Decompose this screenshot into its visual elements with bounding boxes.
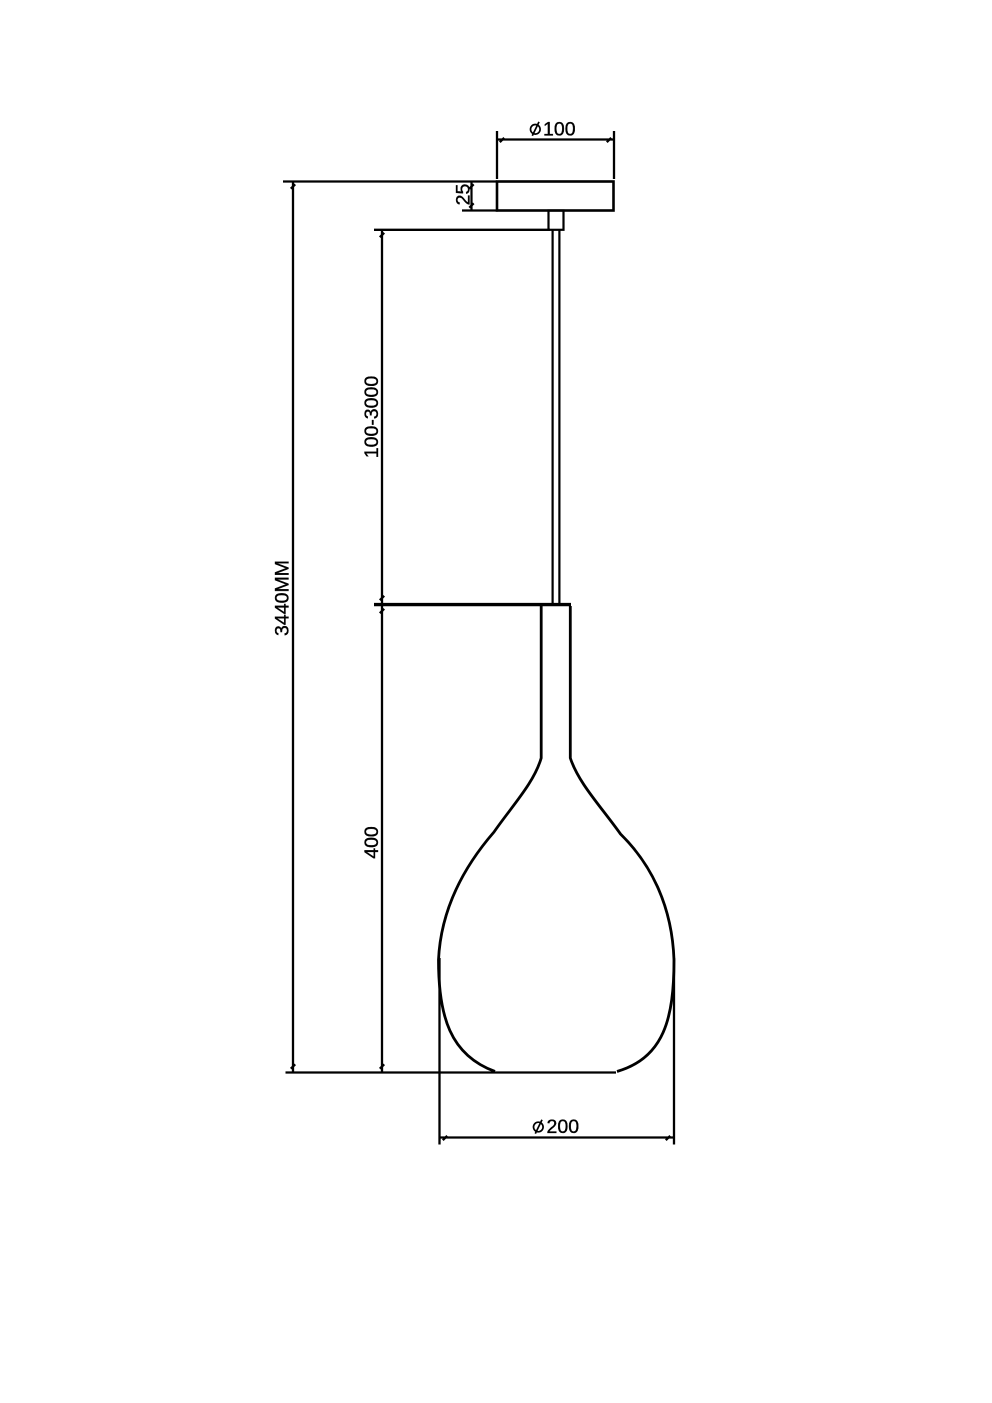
svg-text:3440MM: 3440MM: [272, 560, 294, 636]
svg-text:400: 400: [361, 826, 383, 859]
svg-text:200: 200: [547, 1116, 580, 1138]
svg-text:100-3000: 100-3000: [361, 376, 383, 459]
svg-text:25: 25: [453, 184, 475, 206]
svg-text:100: 100: [543, 118, 576, 140]
